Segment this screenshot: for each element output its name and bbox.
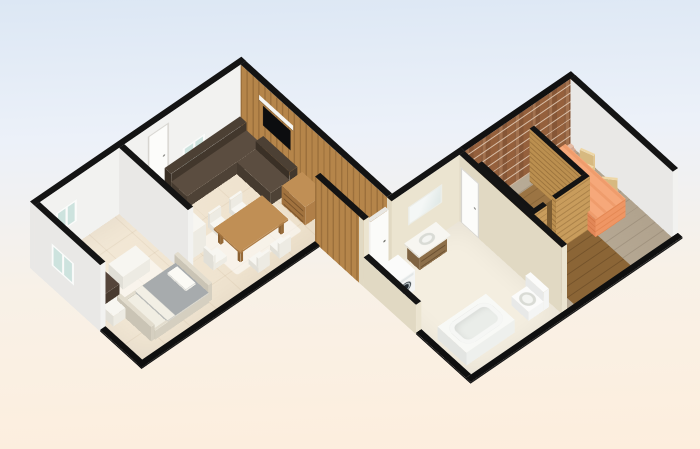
wall-bedroom-west-south[interactable] bbox=[100, 262, 105, 332]
wall-bath-east-south[interactable] bbox=[562, 244, 567, 314]
floorplan-3d-view[interactable] bbox=[0, 0, 700, 449]
wall-bedroom-west-window bbox=[52, 243, 74, 285]
wall-bath-west-south[interactable] bbox=[416, 301, 421, 334]
wall-bath-north-mirror bbox=[408, 184, 442, 226]
door-bathroom-north-dot bbox=[383, 239, 385, 242]
wall-brickroom-east-south[interactable] bbox=[673, 168, 678, 238]
bed-footboard-south[interactable] bbox=[151, 324, 155, 341]
